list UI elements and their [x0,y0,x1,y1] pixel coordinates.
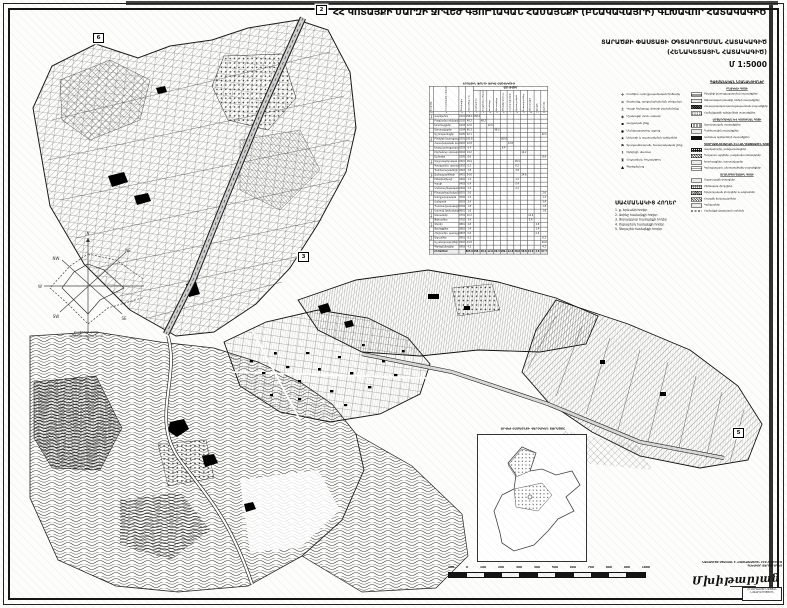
adjacent-lands-header: ՍԱՀՄԱՆԱԿԻՑ ՀՈՂԵՐ [615,200,699,206]
rose-dir-n: N [87,231,90,236]
table-cell: 189.0 [500,250,507,255]
legend-symbol-label: Եկեղեցի, մատուռ [627,152,652,155]
legend-symbol-label: Գյուղապետարան, հասարակական շենք [627,144,683,147]
legend-symbol-label: Քարհանք, արդյունահանման տեղամաս [627,101,682,104]
legend-swatch [691,148,702,152]
subtitle-line1: ՏԱՐԱԾՔԻ ՓԱՍՏԱՑԻ ՕԳՏԱԳՈՐԾՄԱՆ ՀԱՏԱԿԱԳԻԾ [601,38,767,48]
legend-swatch-item: Հիմնական փողոցներ [691,185,783,189]
legend-symbol-icon: ⚑ [620,144,625,148]
land-balance-table: ԳոտիներՀողատեսքերի անվանումըԾածկագիրԸնդա… [429,86,548,254]
map-scale-label: Մ 1:5000 [601,59,767,71]
legend-swatch-label: Կոմունալ օբյեկտների տարածքներ [704,136,749,139]
table-cell: 15.6 [527,250,534,255]
legend-swatch-item: Խոտհարքներ, արոտավայրեր [691,160,783,164]
table-header: Ջրային [534,90,541,111]
scale-tick-label: 100 [480,566,486,569]
legend-swatch-label: Մայրուղային փողոցներ [704,179,735,182]
table-header: Ծածկագիր [459,86,465,111]
legend-symbol-item: ♜ Հուշարձան, հուշակոթող [620,158,700,162]
title-paren: (ԲՆԱԿԱՎԱՅՐԻ) [581,7,654,18]
table-cell: 30.8 [514,250,521,255]
rose-dir-sw: SW [53,314,60,319]
title-main: ՀՀ ԿՈՏԱՅՔԻ ՄԱՐԶԻ ՋՐՎԵԺ ԳՅՈՒՂԱԿԱՆ ՀԱՄԱՅՆՔ… [333,7,578,18]
rose-dir-ne: NE [125,248,131,253]
legend-symbol-label: Մանկապարտեզ, դպրոց [627,130,661,133]
table-header: Հողատեսքերի անվանումը [434,86,459,111]
legend-section-header: ՏՐԱՆՍՊՈՐՏԱՅԻՆ ԳՈՏԻ [691,174,783,177]
legend-swatch-item: Կանգառներ [691,204,783,208]
legend-swatch [691,154,702,158]
legend-swatch-item: Վարելահողեր, բանջարանոցներ [691,148,783,152]
land-balance-table-block: ՀՈՂԱՅԻՆ ՖՈՆԴԻ ԱՌԿԱ ՀԱՇՎԵԿՇԻՌ ԳոտիներՀողա… [429,82,549,465]
legend-swatch-item: Համայնքային օբյեկտների տարածքներ [691,111,783,115]
legend-symbol-item: ▲ Գերեզմանոց [620,166,700,170]
legend-swatch-item: Արտադրական տարածքներ [691,123,783,127]
table-header: Ընդամենը, հա [465,86,473,111]
scale-bar-segments [448,572,646,578]
legend-symbol-item: ★ Առևտրի և սպասարկման օբյեկտներ [620,137,700,141]
scale-tick-label: 0 [466,566,468,569]
table-cell: 38.8 [521,250,528,255]
legend-symbol-item: ⚑ Գյուղապետարան, հասարակական շենք [620,144,700,148]
legend-swatch-item: Հողային ճանապարհներ [691,197,783,201]
legend-swatch [691,105,702,109]
stamp-line2: ՆԱԽԱՐԱՐՈՒԹՅՈՒՆ [743,591,781,594]
legend-symbol-item: ☨ Եկեղեցի, մատուռ [620,151,700,155]
legend-symbol-item: ✕ Քարհանք, արդյունահանման տեղամաս [620,100,700,104]
legend-swatch [691,185,702,189]
table-header: Ճանապարհներ [521,90,528,111]
table-cell [429,250,434,255]
table-header: Արտադրական [514,90,521,111]
legend-swatch-label: Հողային ճանապարհներ [704,198,736,201]
legend-symbol-item: ✛ Բուժկետ, առողջապահական հիմնարկ [620,93,700,97]
legend-title: ՊԱՅՄԱՆԱԿԱՆ ՆՇԱՆԱԿՈՒՄՆԵՐ [691,80,783,84]
table-cell: ԸՆԴԱՄԵՆԸ [434,250,459,255]
scale-tick-label: 400 [534,566,540,569]
table-cell: 96.3 [494,250,501,255]
scale-tick-label: 800 [606,566,612,569]
title-tail: ԳԼԽԱՎՈՐ ՀԱՏԱԿԱԳԻԾ [657,7,766,18]
legend-symbol-icon: ◈ [620,115,625,119]
table-header: Հասարակական [507,90,514,111]
legend-swatch [691,93,702,97]
rose-caption-line2: (կրկնելիությունը %-ով) [50,335,122,339]
legend-swatch-item: Մայրուղային փողոցներ [691,179,783,183]
scale-tick-label: 600 [570,566,576,569]
map-sector-marker: 2 [316,5,327,15]
adjacent-land-item: 5. Գեղաշեն համայնքի հողեր [615,227,699,232]
legend-symbol-icon: ♜ [620,158,625,162]
table-header: Արոտավայր [494,90,501,111]
legend-swatch [691,179,702,183]
map-sheet: ՀՀ ԿՈՏԱՅՔԻ ՄԱՐԶԻ ՋՐՎԵԺ ԳՅՈՒՂԱԿԱՆ ՀԱՄԱՅՆՔ… [0,0,787,608]
legend-swatch-item: Համայնքի վարչական սահման [691,210,783,213]
wind-rose: N NE E SE S SW W NW [24,226,144,342]
stamp-box: ՀՀ ՔԱՂԱՔԱՇԻՆՈՒԹՅԱՆ ՆԱԽԱՐԱՐՈՒԹՅՈՒՆ [742,587,782,601]
legend-swatch-label: Կանգառներ [704,204,720,207]
legend-swatch-label: Հասարակական կառուցապատման տարածքներ [704,106,768,109]
legend-swatch [691,136,702,140]
rose-dir-w: W [38,284,42,289]
scale-tick-label: 300 [516,566,522,569]
legend-symbol-icon: ▲ [620,166,625,170]
legend-symbol-label: Հուշարձան, հուշակոթող [627,159,661,162]
table-header: Անտառային [527,90,534,111]
legend-symbol-label: Վարչական շենք [627,123,650,126]
legend-swatch-item: Երկրորդական փողոցներ և անցումներ [691,191,783,195]
scale-tick-label: 900 [624,566,630,569]
legend-symbol-icon: ▪ [620,122,625,126]
legend-symbol-item: ⚓ Կապի հանգույց, փոստի բաժանմունք [620,108,700,112]
legend-symbol-icon: ★ [620,137,625,141]
legend-swatch-item: Պտղատու այգիներ, բազմամյա տնկարկներ [691,154,783,158]
sheet-title: ՀՀ ԿՈՏԱՅՔԻ ՄԱՐԶԻ ՋՐՎԵԺ ԳՅՈՒՂԱԿԱՆ ՀԱՄԱՅՆՔ… [333,7,766,18]
legend-swatch-label: Արտադրական տարածքներ [704,124,740,127]
legend-swatch-label: Կանաչապատ, անտառածածկ տարածքներ [704,167,761,170]
legend-symbol-icon: ◉ [620,129,625,133]
scale-tick-label: 1000 [642,566,650,569]
legend-symbol-label: Կապի հանգույց, փոստի բաժանմունք [627,108,679,111]
legend-swatch-item: Բնակելի կառուցապատման տարածքներ [691,93,783,97]
rose-dir-se: SE [121,316,127,321]
table-cell: 97.7 [541,250,548,255]
legend-swatch [691,123,702,127]
legend-symbol-icon: ☨ [620,151,625,155]
map-sector-marker: 3 [298,252,309,262]
table-row: ԸՆԴԱՄԵՆԸ805.0258.448.212.696.3189.012.83… [429,250,547,255]
legend-swatch [691,111,702,115]
legend-symbol-label: Առևտրի և սպասարկման օբյեկտներ [627,137,678,140]
map-sector-marker: 5 [733,428,744,438]
scale-bar: 10001002003004005006007008009001000 [448,566,654,578]
legend-swatch [691,99,702,103]
rose-dir-nw: NW [53,256,60,261]
subtitle-line2: (ՀԵՆԱԿԵՏԱՅԻՆ ՀԱՏԱԿԱԳԻԾ) [601,48,767,58]
legend-symbol-icon: ⚓ [620,108,625,112]
legend-symbols: ✛ Բուժկետ, առողջապահական հիմնարկ ✕ Քարհա… [620,93,700,193]
legend-swatch-label: Հիմնական փողոցներ [704,185,732,188]
inset-map-box [477,434,587,562]
legend-swatch [691,191,702,195]
legend-symbol-label: Մշակույթի տուն, ակումբ [627,115,661,118]
credits-line2: ԳԼԽԱՎՈՐ ՃԱՐՏԱՐԱՊԵՏ [684,565,782,569]
legend-swatch [691,130,702,134]
inset-map-block: ՋՐՎԵԺ ՀԱՄԱՅՆՔԻ ՎԱՐՉԱԿԱՆ ՏԱՐԱԾՔԸ [477,427,589,562]
legend-symbol-item: ◈ Մշակույթի տուն, ակումբ [620,115,700,119]
scale-tick-label: 100 [448,566,454,569]
legend-swatch-item: Կանաչապատ, անտառածածկ տարածքներ [691,167,783,171]
wind-rose-caption: Քամիների վարդ (կրկնելիությունը %-ով) [50,331,122,346]
table-cell: 12.8 [507,250,514,255]
scale-tick-label: 200 [498,566,504,569]
legend-symbol-label: Գերեզմանոց [627,166,645,169]
table-cell: 805.0 [465,250,473,255]
table-header: Բազմամյա տնկարկ [480,90,487,111]
legend-section-header: ԲՆԱԿԵԼԻ ԳՈՏԻ [691,88,783,91]
legend-swatch-label: Բնակելի կառուցապատման տարածքներ [704,93,758,96]
table-cell: 12.6 [487,250,494,255]
legend-swatch-label: Պտղատու այգիներ, բազմամյա տնկարկներ [704,155,761,158]
legend-swatch-label: Պահեստային տարածքներ [704,130,739,133]
table-header: Այլ հողեր [541,90,548,111]
legend-swatch-label: Երկրորդական փողոցներ և անցումներ [704,192,755,195]
adjacent-lands-block: ՍԱՀՄԱՆԱԿԻՑ ՀՈՂԵՐ 1. ք. Երևանի հողեր2. Առ… [615,200,699,264]
table-title: ՀՈՂԱՅԻՆ ՖՈՆԴԻ ԱՌԿԱ ՀԱՇՎԵԿՇԻՌ [429,82,549,85]
table-cell: 48.2 [480,250,487,255]
legend-swatches: ՊԱՅՄԱՆԱԿԱՆ ՆՇԱՆԱԿՈՒՄՆԵՐ ԲՆԱԿԵԼԻ ԳՈՏԻԲնակ… [691,80,783,349]
legend-swatch-label: Վարելահողեր, բանջարանոցներ [704,148,746,151]
map-sector-marker: 6 [93,33,104,43]
legend-symbol-item: ▪ Վարչական շենք [620,122,700,126]
legend-swatch [691,167,702,171]
table-header: Վարելահող [473,90,480,111]
legend-swatch-label: Խոտհարքներ, արոտավայրեր [704,161,743,164]
inset-title: ՋՐՎԵԺ ՀԱՄԱՅՆՔԻ ՎԱՐՉԱԿԱՆ ՏԱՐԱԾՔԸ [477,427,589,431]
legend-swatch-label: Համայնքային օբյեկտների տարածքներ [704,112,755,115]
legend-swatch-label: Անհատական բնակելի տների տարածքներ [704,99,760,102]
table-cell: 258.4 [473,250,480,255]
scale-tick-label: 500 [552,566,558,569]
scale-tick-label: 700 [588,566,594,569]
legend-symbol-label: Բուժկետ, առողջապահական հիմնարկ [627,94,681,97]
table-header: Բնակելի կառուց. [500,90,507,111]
legend-swatch-item: Պահեստային տարածքներ [691,130,783,134]
legend-swatch-item: Հասարակական կառուցապատման տարածքներ [691,105,783,109]
legend-section-header: ԳՅՈՒՂԱՏՆՏԵՍԱԿԱՆ ԵՎ ԼԱՆԴՇԱՖՏԱՅԻՆ ԳՈՏԻ [691,143,783,146]
legend-swatch-item: Անհատական բնակելի տների տարածքներ [691,99,783,103]
legend-swatch [691,160,702,164]
sheet-subtitle: ՏԱՐԱԾՔԻ ՓԱՍՏԱՑԻ ՕԳՏԱԳՈՐԾՄԱՆ ՀԱՏԱԿԱԳԻԾ (Հ… [601,38,767,70]
legend-symbol-icon: ✕ [620,100,625,104]
legend-swatch-item: Կոմունալ օբյեկտների տարածքներ [691,136,783,140]
legend-swatch-label: Համայնքի վարչական սահման [704,210,744,213]
table-cell: 4.8 [534,250,541,255]
legend-symbol-item: ◉ Մանկապարտեզ, դպրոց [620,129,700,133]
table-header: Խոտհարք [487,90,494,111]
legend-symbol-icon: ✛ [620,93,625,97]
legend-section-header: ԱՐՏԱԴՐԱԿԱՆ ԵՎ ԿՈՄՈՒՆԱԼ ԳՈՏԻ [691,118,783,121]
